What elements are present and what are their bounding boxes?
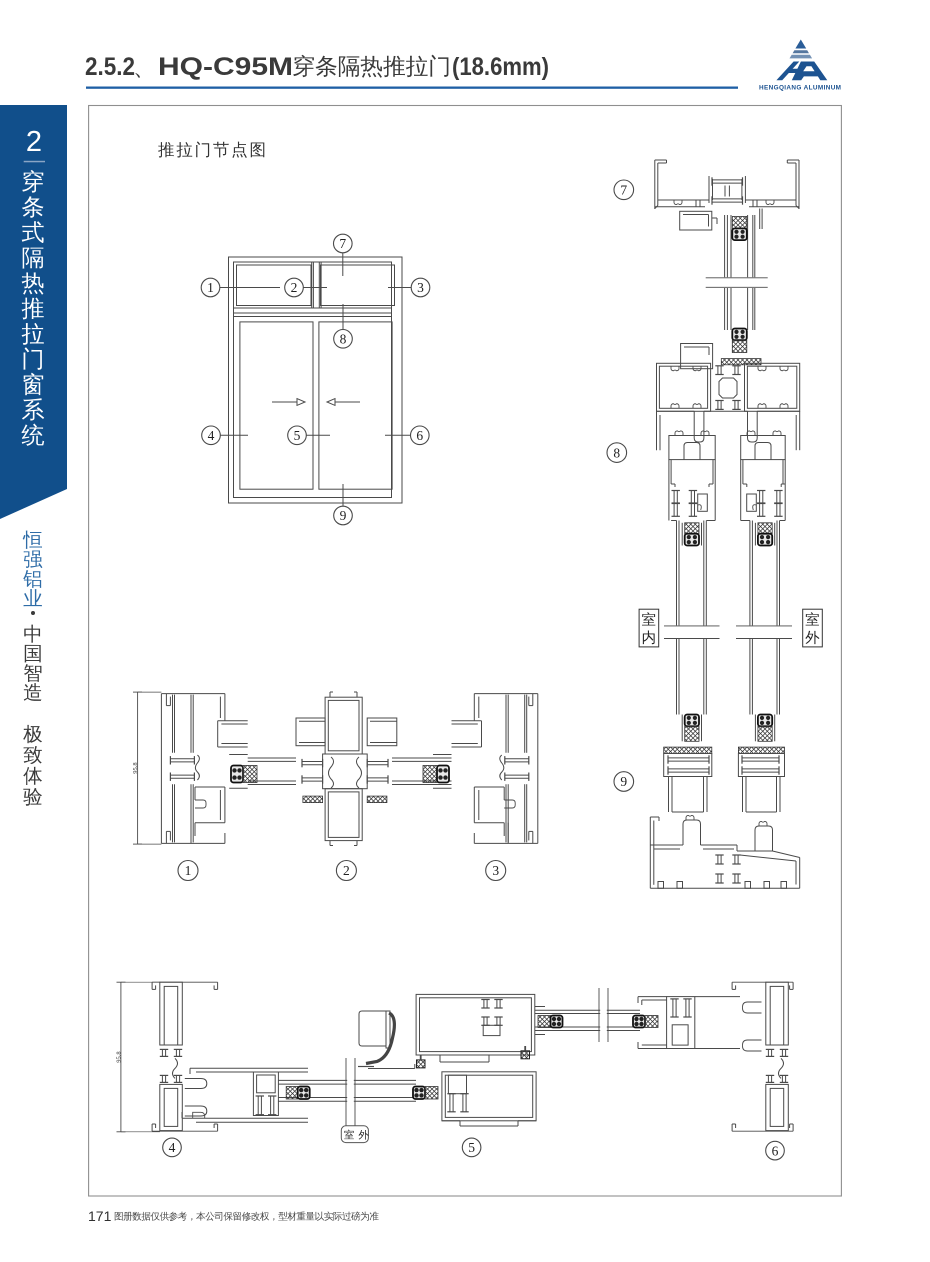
svg-text:1: 1 bbox=[185, 863, 192, 878]
svg-text:3: 3 bbox=[492, 863, 499, 878]
svg-text:5: 5 bbox=[294, 428, 301, 443]
svg-text:1: 1 bbox=[207, 280, 214, 295]
svg-text:2: 2 bbox=[26, 126, 42, 158]
svg-text:2.5.2: 2.5.2 bbox=[85, 53, 135, 81]
svg-text:2: 2 bbox=[343, 863, 350, 878]
svg-text:4: 4 bbox=[169, 1140, 176, 1155]
svg-text:7: 7 bbox=[339, 236, 346, 251]
svg-text:8: 8 bbox=[613, 445, 620, 460]
svg-text:HQ-C95M: HQ-C95M bbox=[158, 53, 293, 81]
svg-text:171: 171 bbox=[88, 1208, 112, 1224]
svg-text:5: 5 bbox=[468, 1140, 475, 1155]
svg-text:9: 9 bbox=[340, 508, 347, 523]
svg-text:95.8: 95.8 bbox=[132, 762, 139, 773]
svg-text:6: 6 bbox=[416, 428, 423, 443]
svg-text:8: 8 bbox=[340, 332, 347, 347]
svg-text:HENGQIANG ALUMINUM: HENGQIANG ALUMINUM bbox=[759, 85, 841, 92]
svg-text:9: 9 bbox=[620, 774, 627, 789]
svg-text:3: 3 bbox=[417, 280, 424, 295]
svg-text:4: 4 bbox=[208, 428, 215, 443]
svg-text:7: 7 bbox=[620, 183, 627, 198]
svg-text:95.8: 95.8 bbox=[116, 1051, 123, 1062]
svg-text:2: 2 bbox=[291, 280, 298, 295]
svg-text:(18.6mm): (18.6mm) bbox=[452, 53, 549, 81]
svg-text:6: 6 bbox=[772, 1143, 779, 1158]
